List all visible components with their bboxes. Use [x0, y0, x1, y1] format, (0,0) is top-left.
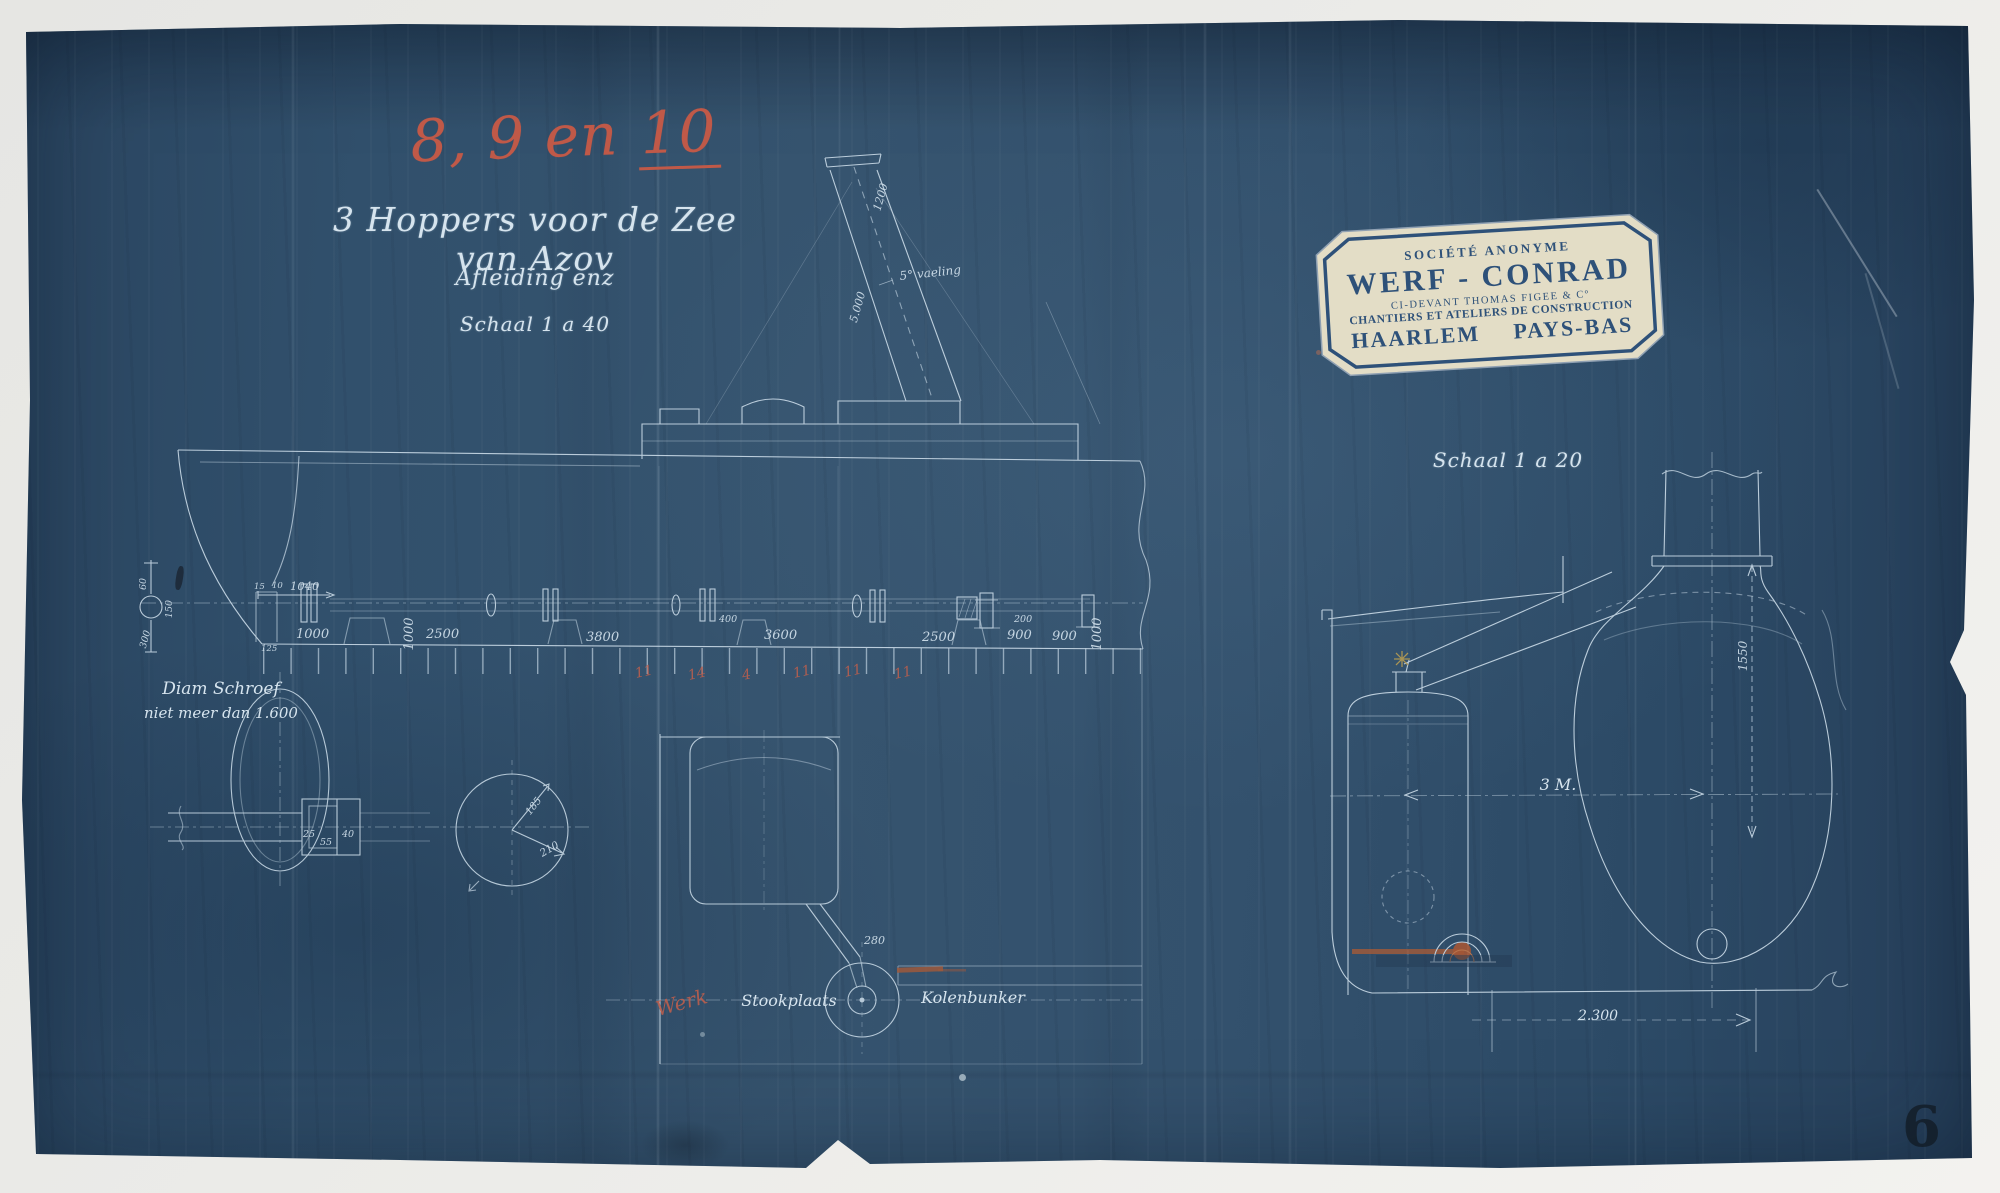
funnel-length-dimension: 5.000 [847, 290, 868, 324]
cross-section-drawing [1322, 452, 1848, 1052]
page-number: 6 [1902, 1094, 1941, 1160]
bottom-width-dimension: 2.300 [1577, 1008, 1618, 1024]
dimension-label: 1000 [402, 617, 417, 650]
hub-dimension: 40 [341, 829, 354, 840]
red-note: Werk [653, 984, 710, 1021]
dimension-label: 10 [272, 581, 283, 591]
yellow-star-mark [1394, 651, 1410, 667]
dimension-label: 1000 [296, 627, 329, 642]
dimension-label: 2500 [425, 627, 459, 642]
beam-dimension: 3 M. [1540, 775, 1577, 794]
stookplaats-label: Stookplaats [741, 991, 836, 1010]
red-frame-number: 11 [634, 663, 655, 682]
funnel [706, 154, 1100, 424]
drawing-subtitle: Afleiding enz [420, 266, 650, 291]
cross-section-texts: 1550 3 M. 2.300 [1540, 640, 1750, 1024]
dimension-label: 60 [138, 578, 149, 590]
red-frame-number: 11 [843, 662, 864, 681]
funnel-top-dimension: 1200 [871, 182, 891, 212]
dimension-label: 1040 [290, 579, 319, 593]
red-number-part1: 8, 9 en [409, 100, 619, 175]
dimension-label: 400 [718, 614, 737, 625]
orange-shaft-mark [1352, 949, 1464, 954]
orange-ink-mark [897, 966, 943, 973]
funnel-rake-label: 5° vaeling [899, 263, 962, 283]
shaft-radius-dimension: 210 [537, 839, 561, 860]
propeller-note-line1: Diam Schroef [161, 679, 282, 699]
dimension-label: 1000 [1090, 617, 1105, 650]
hub-dimension: 25 [302, 829, 315, 840]
red-frame-number: 11 [893, 664, 914, 683]
red-frame-number: 14 [687, 665, 708, 684]
rod-dimension: 280 [863, 934, 885, 947]
red-frame-number: 11 [792, 663, 813, 682]
plan-view-texts: 280 Stookplaats Kolenbunker Werk [653, 934, 1026, 1021]
dimension-label: 3600 [764, 628, 797, 643]
hub-dimension: 55 [320, 837, 332, 848]
scale-note-right: Schaal 1 a 20 [1408, 448, 1608, 472]
drawing-linework: 1000 2500 3800 3600 2500 900 900 1000 10… [0, 0, 2000, 1193]
dimension-label: 200 [1013, 614, 1032, 625]
werf-conrad-stamp: SOCIÉTÉ ANONYME WERF - CONRAD CI-DEVANT … [1312, 210, 1668, 380]
dimension-label: 900 [1052, 629, 1077, 644]
dimension-label: 900 [1007, 628, 1032, 643]
blueprint-scan: 1000 2500 3800 3600 2500 900 900 1000 10… [0, 0, 2000, 1193]
shadow-band [1376, 955, 1512, 967]
red-frame-numbers: 11 14 4 11 11 11 [634, 662, 914, 685]
propeller-detail-texts: Diam Schroef niet meer dan 1.600 25 55 4… [144, 679, 561, 860]
dimension-label: 125 [261, 644, 277, 654]
shaft-radius-dimension: 185 [524, 796, 544, 818]
orange-ink-mark [938, 969, 966, 972]
red-drawing-numbers: 8, 9 en 10 [379, 96, 751, 177]
propeller-note-line2: niet meer dan 1.600 [144, 704, 298, 722]
red-frame-number: 4 [740, 666, 753, 684]
kolenbunker-label: Kolenbunker [920, 988, 1026, 1007]
dimension-label: 15 [254, 582, 265, 592]
scale-note-left: Schaal 1 a 40 [420, 312, 650, 336]
dimension-label: 150 [164, 600, 175, 618]
red-number-underlined: 10 [636, 97, 720, 171]
dimension-label: 3800 [586, 630, 619, 645]
skylight [742, 399, 804, 424]
height-dimension: 1550 [1736, 640, 1750, 671]
dimension-label: 2500 [921, 630, 955, 645]
